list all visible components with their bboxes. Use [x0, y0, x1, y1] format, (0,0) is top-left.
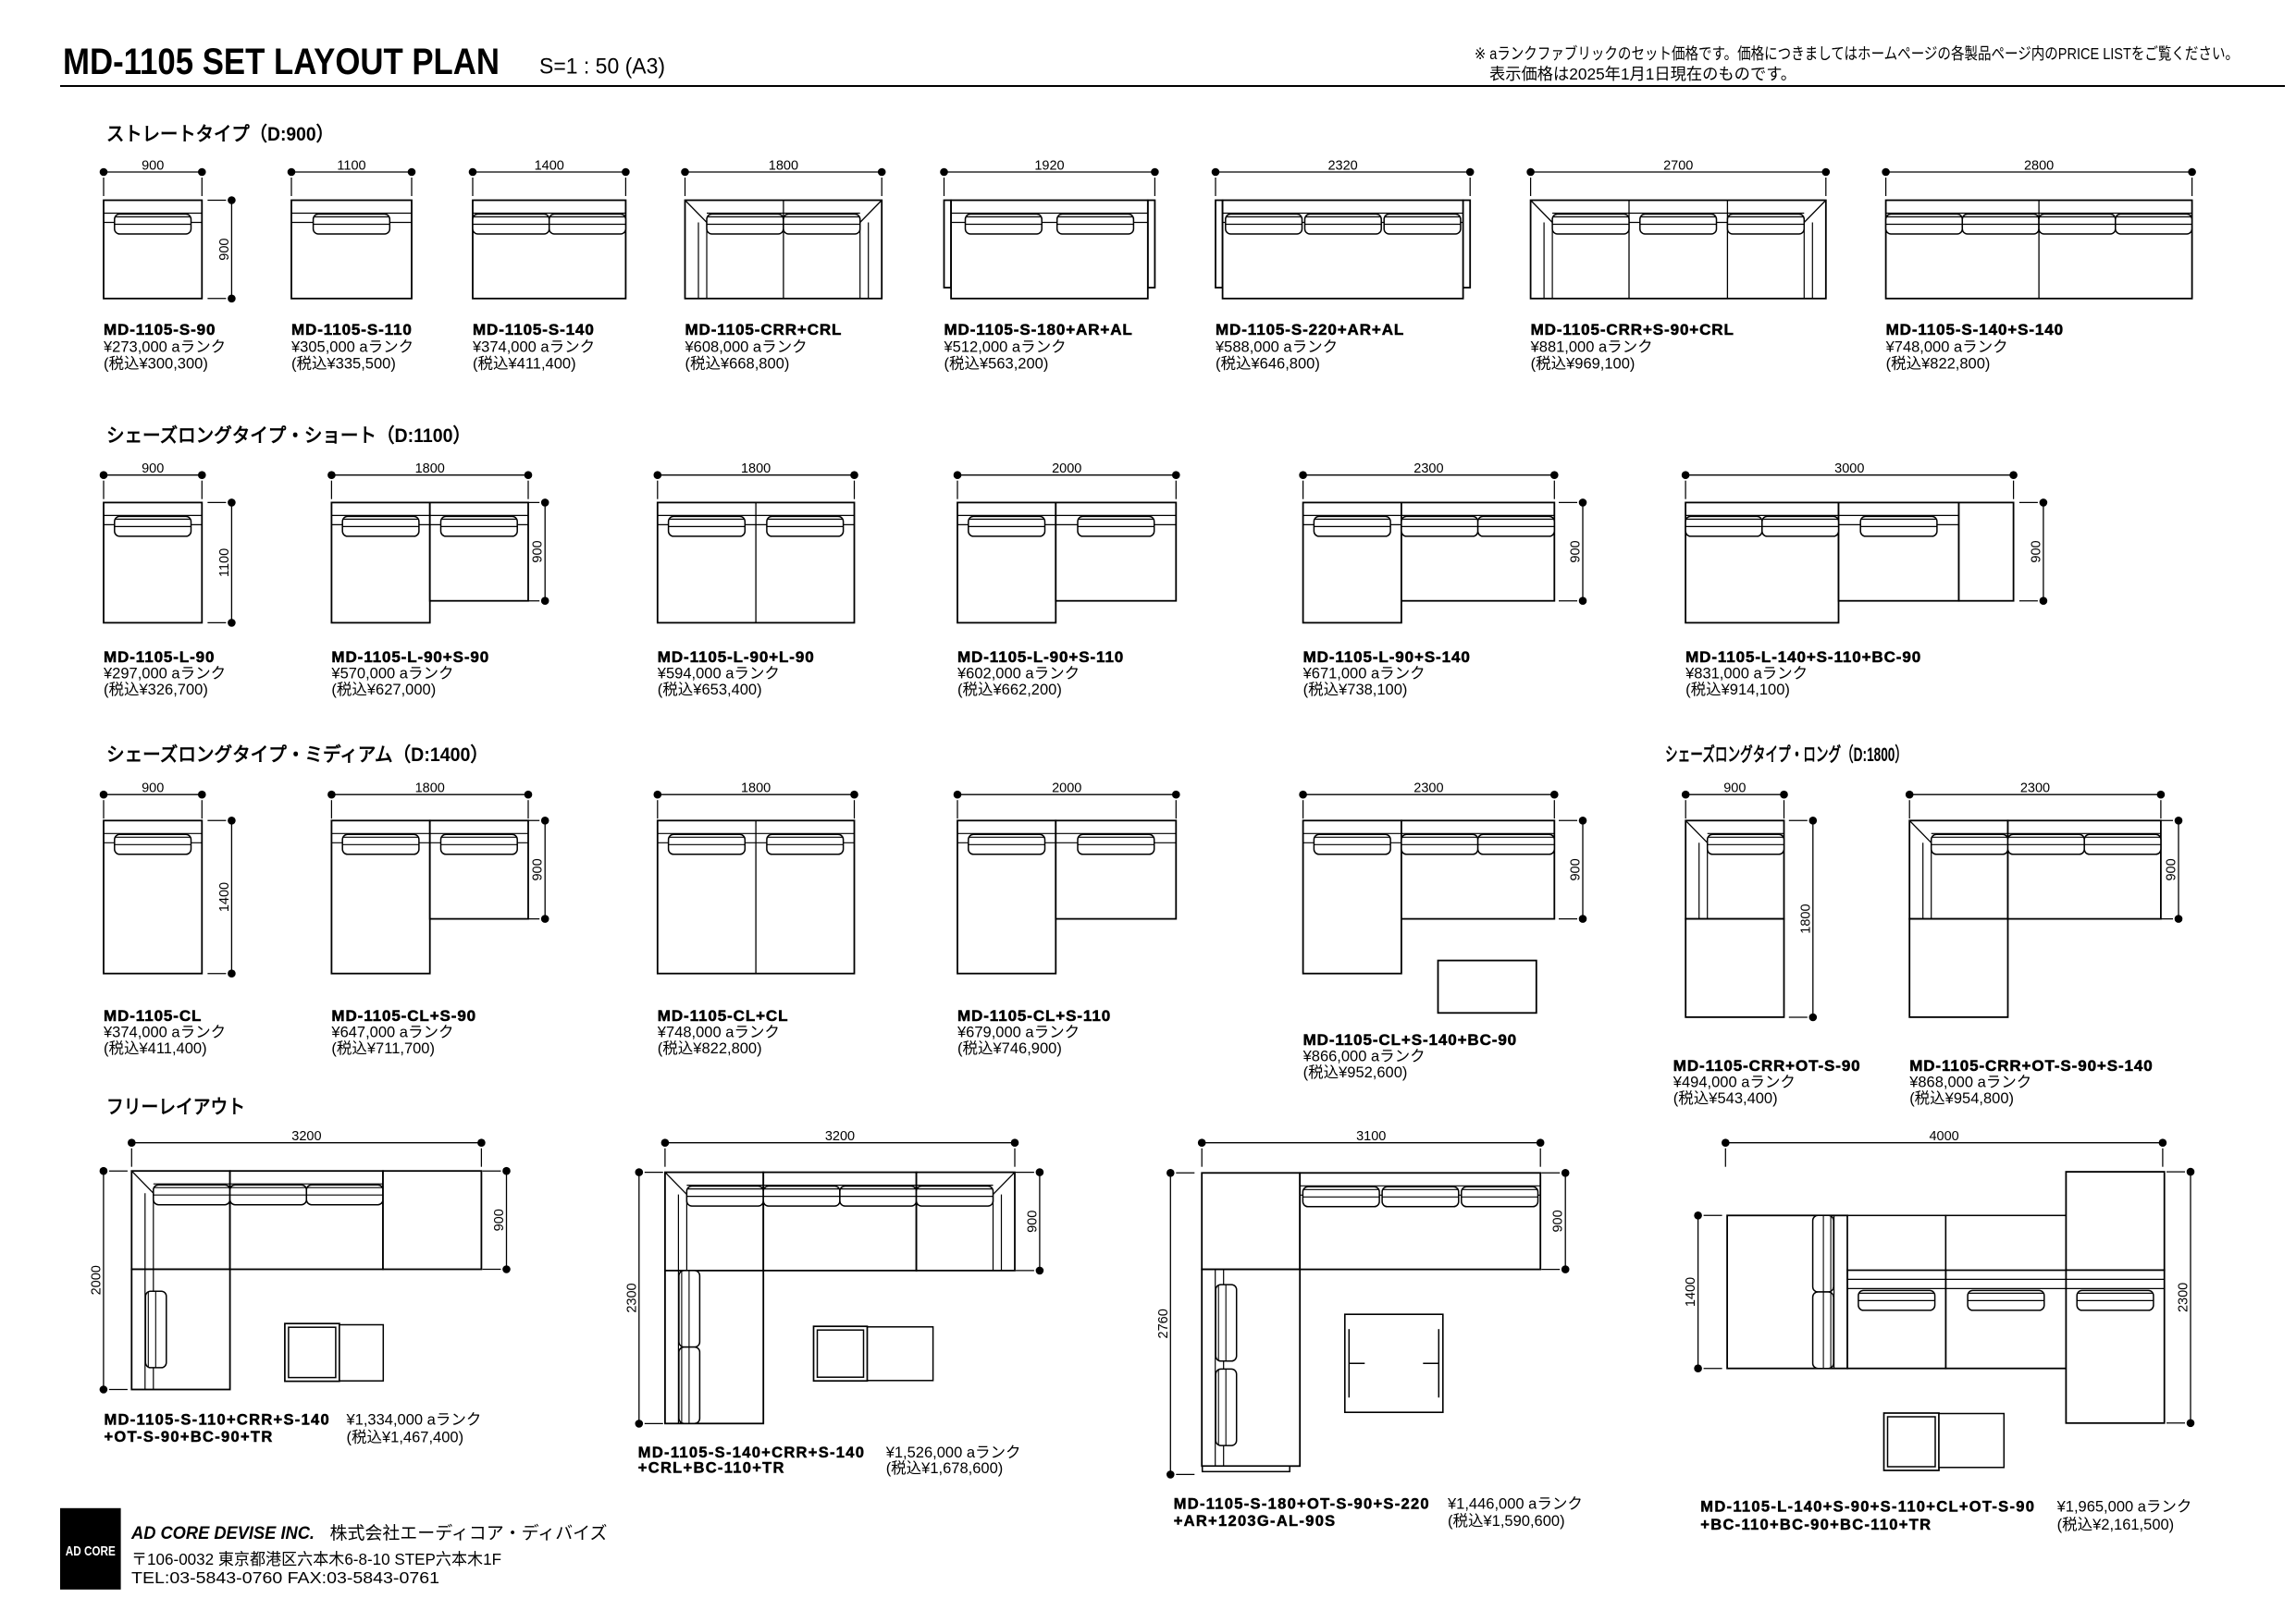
svg-text:MD-1105-CRR+OT-S-90+S-140: MD-1105-CRR+OT-S-90+S-140 [1909, 1057, 2153, 1075]
svg-text:900: 900 [492, 1209, 507, 1231]
svg-text:MD-1105-S-140+CRR+S-140: MD-1105-S-140+CRR+S-140 [638, 1445, 865, 1461]
svg-text:1100: 1100 [217, 548, 232, 577]
svg-text:¥748,000 aランク: ¥748,000 aランク [657, 1024, 780, 1041]
svg-text:900: 900 [142, 461, 164, 476]
svg-text:1800: 1800 [415, 781, 445, 796]
svg-text:1800: 1800 [1798, 904, 1813, 933]
svg-text:(税込¥914,100): (税込¥914,100) [1685, 681, 1790, 698]
svg-text:MD-1105-CL+S-140+BC-90: MD-1105-CL+S-140+BC-90 [1303, 1031, 1517, 1049]
svg-text:¥647,000 aランク: ¥647,000 aランク [330, 1024, 453, 1041]
svg-text:MD-1105-S-180+OT-S-90+S-220: MD-1105-S-180+OT-S-90+S-220 [1174, 1496, 1430, 1513]
svg-text:2300: 2300 [2020, 781, 2050, 796]
svg-text:2700: 2700 [1663, 159, 1693, 174]
svg-text:¥273,000 aランク: ¥273,000 aランク [103, 338, 226, 356]
svg-text:+AR+1203G-AL-90S: +AR+1203G-AL-90S [1174, 1513, 1337, 1530]
svg-text:1920: 1920 [1034, 159, 1064, 174]
svg-text:(税込¥822,800): (税込¥822,800) [1886, 355, 1991, 373]
svg-text:1400: 1400 [535, 159, 564, 174]
svg-text:(税込¥411,400): (税込¥411,400) [104, 1039, 207, 1057]
svg-text:AD CORE: AD CORE [66, 1543, 116, 1559]
svg-text:1800: 1800 [769, 159, 798, 174]
svg-text:(税込¥411,400): (税込¥411,400) [473, 355, 576, 373]
svg-text:(税込¥662,200): (税込¥662,200) [957, 681, 1062, 698]
svg-text:¥374,000 aランク: ¥374,000 aランク [472, 338, 595, 356]
svg-text:MD-1105-CL+S-110: MD-1105-CL+S-110 [957, 1007, 1111, 1025]
svg-text:¥748,000 aランク: ¥748,000 aランク [1885, 338, 2008, 356]
svg-text:MD-1105-CL: MD-1105-CL [104, 1007, 202, 1025]
svg-text:(税込¥563,200): (税込¥563,200) [944, 355, 1049, 373]
svg-text:(税込¥1,590,600): (税込¥1,590,600) [1448, 1512, 1565, 1530]
svg-text:¥608,000 aランク: ¥608,000 aランク [685, 338, 808, 356]
svg-text:MD-1105-CL+S-90: MD-1105-CL+S-90 [331, 1007, 476, 1025]
svg-text:〒106-0032 東京都港区六本木6-8-10 STEP六: 〒106-0032 東京都港区六本木6-8-10 STEP六本木1F [131, 1550, 501, 1568]
svg-text:900: 900 [217, 238, 232, 260]
svg-text:2760: 2760 [1156, 1309, 1171, 1338]
svg-text:(税込¥952,600): (税込¥952,600) [1303, 1064, 1408, 1081]
svg-text:¥1,334,000 aランク: ¥1,334,000 aランク [346, 1411, 482, 1429]
svg-text:4000: 4000 [1929, 1129, 1958, 1144]
svg-text:2320: 2320 [1327, 159, 1357, 174]
svg-text:MD-1105-CL+CL: MD-1105-CL+CL [658, 1007, 789, 1025]
svg-text:¥1,965,000 aランク: ¥1,965,000 aランク [2056, 1498, 2192, 1516]
svg-text:MD-1105-L-90+L-90: MD-1105-L-90+L-90 [658, 648, 815, 666]
svg-text:MD-1105-L-90: MD-1105-L-90 [104, 648, 215, 666]
svg-text:¥866,000 aランク: ¥866,000 aランク [1302, 1048, 1426, 1065]
svg-text:(税込¥2,161,500): (税込¥2,161,500) [2057, 1516, 2175, 1533]
svg-text:(税込¥646,800): (税込¥646,800) [1216, 355, 1320, 373]
svg-text:900: 900 [1723, 781, 1746, 796]
svg-text:1800: 1800 [741, 461, 771, 476]
svg-text:900: 900 [1551, 1210, 1566, 1232]
svg-text:TEL:03-5843-0760 FAX:03-5843-: TEL:03-5843-0760 FAX:03-5843-0761 [131, 1568, 439, 1587]
svg-text:MD-1105-L-90+S-110: MD-1105-L-90+S-110 [957, 648, 1124, 666]
svg-text:900: 900 [142, 159, 164, 174]
svg-text:(税込¥822,800): (税込¥822,800) [658, 1039, 762, 1057]
svg-text:(税込¥1,678,600): (税込¥1,678,600) [886, 1459, 1004, 1477]
svg-text:MD-1105-CRR+OT-S-90: MD-1105-CRR+OT-S-90 [1673, 1057, 1861, 1075]
svg-text:1800: 1800 [741, 781, 771, 796]
svg-text:(税込¥668,800): (税込¥668,800) [685, 355, 790, 373]
svg-text:(税込¥543,400): (税込¥543,400) [1673, 1089, 1778, 1107]
svg-text:MD-1105-S-140: MD-1105-S-140 [473, 321, 595, 338]
svg-text:900: 900 [531, 858, 546, 880]
svg-text:(税込¥300,300): (税込¥300,300) [104, 355, 208, 373]
svg-text:MD-1105-L-90+S-140: MD-1105-L-90+S-140 [1303, 648, 1471, 666]
svg-text:¥594,000 aランク: ¥594,000 aランク [657, 665, 780, 682]
svg-text:¥1,446,000 aランク: ¥1,446,000 aランク [1447, 1495, 1583, 1513]
svg-text:MD-1105-S-180+AR+AL: MD-1105-S-180+AR+AL [944, 321, 1133, 338]
svg-text:¥494,000 aランク: ¥494,000 aランク [1673, 1074, 1796, 1091]
svg-text:¥570,000 aランク: ¥570,000 aランク [330, 665, 453, 682]
svg-text:¥868,000 aランク: ¥868,000 aランク [1908, 1074, 2031, 1091]
svg-text:MD-1105-S-90: MD-1105-S-90 [104, 321, 216, 338]
svg-text:2300: 2300 [1413, 781, 1443, 796]
svg-text:シェーズロングタイプ・ミディアム（D:1400）: シェーズロングタイプ・ミディアム（D:1400） [106, 744, 488, 766]
svg-text:+CRL+BC-110+TR: +CRL+BC-110+TR [638, 1460, 785, 1477]
svg-text:1400: 1400 [217, 882, 232, 912]
svg-text:MD-1105-CRR+S-90+CRL: MD-1105-CRR+S-90+CRL [1531, 321, 1734, 338]
svg-text:¥374,000 aランク: ¥374,000 aランク [103, 1024, 226, 1041]
svg-text:MD-1105-S-220+AR+AL: MD-1105-S-220+AR+AL [1216, 321, 1404, 338]
svg-text:MD-1105 SET LAYOUT PLAN: MD-1105 SET LAYOUT PLAN [63, 42, 500, 82]
svg-text:(税込¥738,100): (税込¥738,100) [1303, 681, 1408, 698]
svg-text:900: 900 [1569, 858, 1584, 880]
svg-text:900: 900 [1025, 1211, 1040, 1233]
svg-text:MD-1105-S-110+CRR+S-140: MD-1105-S-110+CRR+S-140 [105, 1412, 331, 1429]
svg-text:(税込¥326,700): (税込¥326,700) [104, 681, 208, 698]
svg-text:MD-1105-L-140+S-90+S-110+CL+OT: MD-1105-L-140+S-90+S-110+CL+OT-S-90 [1700, 1499, 2035, 1516]
svg-text:3200: 3200 [291, 1129, 321, 1144]
svg-text:¥588,000 aランク: ¥588,000 aランク [1215, 338, 1338, 356]
svg-text:MD-1105-L-90+S-90: MD-1105-L-90+S-90 [331, 648, 489, 666]
svg-text:(税込¥335,500): (税込¥335,500) [291, 355, 396, 373]
svg-text:1100: 1100 [337, 159, 365, 174]
svg-text:(税込¥746,900): (税込¥746,900) [957, 1039, 1062, 1057]
svg-text:(税込¥711,700): (税込¥711,700) [331, 1039, 435, 1057]
svg-text:¥305,000 aランク: ¥305,000 aランク [290, 338, 414, 356]
svg-text:シェーズロングタイプ・ショート（D:1100）: シェーズロングタイプ・ショート（D:1100） [106, 424, 471, 447]
svg-text:MD-1105-S-140+S-140: MD-1105-S-140+S-140 [1886, 321, 2064, 338]
svg-text:S=1 : 50 (A3): S=1 : 50 (A3) [539, 55, 665, 80]
svg-text:¥831,000 aランク: ¥831,000 aランク [1685, 665, 1808, 682]
svg-text:3200: 3200 [825, 1129, 855, 1144]
svg-text:2300: 2300 [2177, 1283, 2191, 1312]
svg-text:1400: 1400 [1684, 1277, 1698, 1307]
svg-text:¥881,000 aランク: ¥881,000 aランク [1530, 338, 1653, 356]
svg-text:2000: 2000 [1052, 461, 1081, 476]
svg-text:1800: 1800 [415, 461, 445, 476]
svg-text:3000: 3000 [1834, 461, 1864, 476]
svg-text:MD-1105-S-110: MD-1105-S-110 [291, 321, 413, 338]
svg-text:¥679,000 aランク: ¥679,000 aランク [957, 1024, 1080, 1041]
svg-text:2000: 2000 [89, 1265, 104, 1295]
svg-text:2300: 2300 [1413, 461, 1443, 476]
svg-text:¥1,526,000 aランク: ¥1,526,000 aランク [885, 1444, 1021, 1461]
svg-text:¥602,000 aランク: ¥602,000 aランク [957, 665, 1080, 682]
svg-text:シェーズロングタイプ・ロング（D:1800）: シェーズロングタイプ・ロング（D:1800） [1665, 744, 1907, 766]
svg-text:¥297,000 aランク: ¥297,000 aランク [103, 665, 226, 682]
svg-text:(税込¥653,400): (税込¥653,400) [658, 681, 762, 698]
svg-text:フリーレイアウト: フリーレイアウト [106, 1097, 245, 1118]
svg-text:MD-1105-CRR+CRL: MD-1105-CRR+CRL [685, 321, 843, 338]
svg-text:¥671,000 aランク: ¥671,000 aランク [1302, 665, 1426, 682]
svg-text:MD-1105-L-140+S-110+BC-90: MD-1105-L-140+S-110+BC-90 [1685, 648, 1921, 666]
svg-text:900: 900 [2029, 540, 2043, 562]
svg-text:900: 900 [2165, 858, 2179, 880]
svg-text:+OT-S-90+BC-90+TR: +OT-S-90+BC-90+TR [105, 1429, 274, 1445]
svg-text:ストレートタイプ（D:900）: ストレートタイプ（D:900） [106, 123, 334, 145]
svg-text:3100: 3100 [1356, 1129, 1386, 1144]
svg-text:900: 900 [1569, 540, 1584, 562]
svg-text:900: 900 [531, 540, 546, 562]
svg-text:¥512,000 aランク: ¥512,000 aランク [944, 338, 1067, 356]
svg-text:(税込¥954,800): (税込¥954,800) [1909, 1089, 2014, 1107]
svg-text:表示価格は2025年1月1日現在のものです。: 表示価格は2025年1月1日現在のものです。 [1489, 65, 1796, 83]
svg-text:(税込¥1,467,400): (税込¥1,467,400) [347, 1429, 464, 1446]
svg-text:2800: 2800 [2024, 159, 2054, 174]
svg-text:(税込¥969,100): (税込¥969,100) [1531, 355, 1636, 373]
svg-text:2300: 2300 [624, 1283, 639, 1312]
svg-text:900: 900 [142, 781, 164, 796]
svg-text:2000: 2000 [1052, 781, 1081, 796]
svg-text:株式会社エーディコア・ディバイズ: 株式会社エーディコア・ディバイズ [330, 1523, 608, 1543]
svg-text:※ aランクファブリックのセット価格です。価格につきましては: ※ aランクファブリックのセット価格です。価格につきましてはホームページの各製品… [1475, 44, 2239, 63]
svg-text:+BC-110+BC-90+BC-110+TR: +BC-110+BC-90+BC-110+TR [1700, 1517, 1932, 1533]
svg-text:AD CORE DEVISE INC.: AD CORE DEVISE INC. [130, 1523, 315, 1543]
svg-text:(税込¥627,000): (税込¥627,000) [331, 681, 436, 698]
